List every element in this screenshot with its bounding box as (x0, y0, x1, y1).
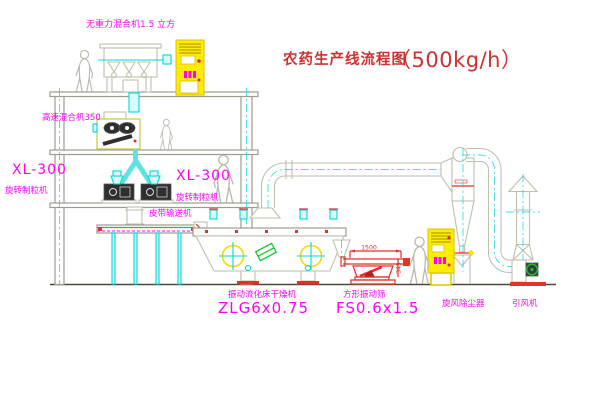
dim-345-text: 345 (396, 262, 403, 274)
discharge-down-pipe (125, 207, 144, 227)
label-sieve-model: FS0.6x1.5 (336, 299, 419, 317)
label-gravity-mixer: 无重力混合机1.5 立方 (86, 18, 175, 30)
label-dryer-model: ZLG6x0.75 (218, 299, 309, 317)
label-granulator-model-left: XL-300 (12, 162, 67, 178)
label-granulator-name-left: 旋转制粒机 (5, 185, 48, 196)
dim-1500: 1500 (350, 245, 401, 259)
induced-draft-fan (510, 260, 546, 286)
gravity-free-mixer (98, 44, 171, 92)
label-fan: 引风机 (512, 298, 538, 309)
exhaust-duct (250, 160, 450, 218)
page-title-capacity: （500kg/h） (390, 48, 522, 72)
dim-345: 345 (396, 259, 403, 277)
square-vibrating-sieve: 1500 345 (341, 245, 410, 285)
worker-figure (160, 119, 172, 149)
worker-figure (410, 237, 429, 283)
production-line-diagram: 1500 345 无重力混合机1.5 立方 高速混合机350 XL-300 旋转… (0, 0, 600, 403)
label-granulator-name-right: 旋转制粒机 (176, 192, 219, 203)
indicator-light-icon (197, 59, 201, 63)
control-cabinet-top (176, 40, 204, 95)
label-belt-conveyor: 皮带输送机 (149, 208, 192, 219)
label-high-speed-mixer: 高速混合机350 (42, 112, 101, 123)
label-cyclone: 旋风除尘器 (442, 298, 485, 309)
control-cabinet-cyclone (428, 229, 454, 285)
granulator-left (102, 171, 136, 203)
page-title: 农药生产线流程图 (282, 50, 407, 68)
exhaust-stack (506, 174, 540, 262)
worker-figure (76, 50, 93, 91)
dim-1500-text: 1500 (361, 245, 377, 252)
belt-conveyor (97, 225, 197, 284)
indicator-light-icon (447, 236, 450, 239)
fluid-bed-dryer (193, 209, 350, 285)
flow-diagram-canvas: 1500 345 无重力混合机1.5 立方 高速混合机350 XL-300 旋转… (0, 0, 600, 403)
feed-pipe (129, 93, 139, 112)
label-granulator-model-right: XL-300 (176, 168, 231, 184)
